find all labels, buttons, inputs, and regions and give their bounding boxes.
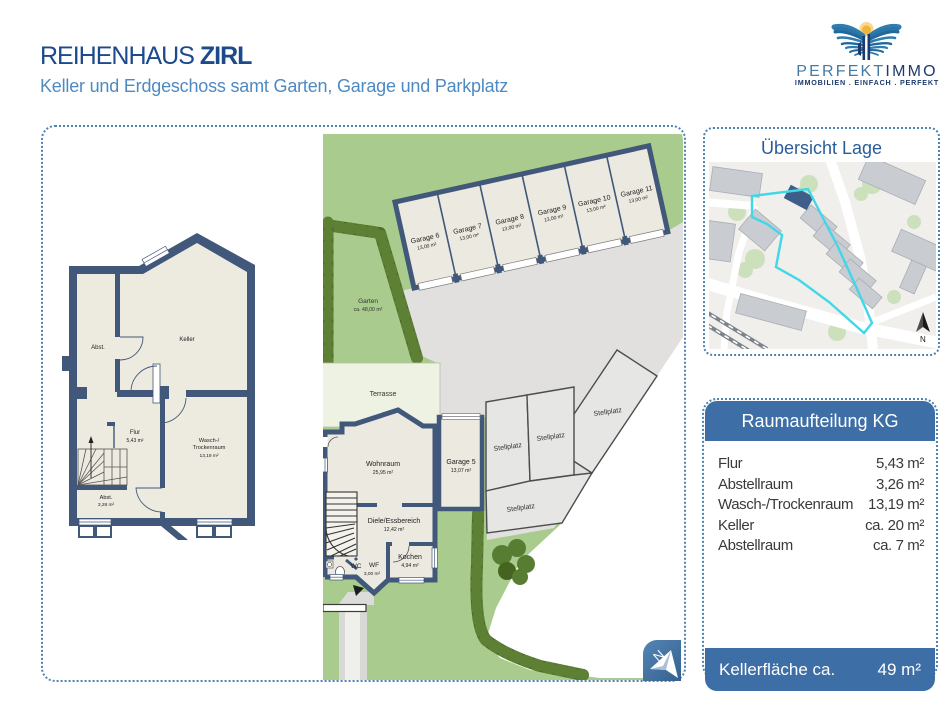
svg-text:Diele/Essbereich: Diele/Essbereich (368, 518, 421, 525)
svg-text:Wasch-/: Wasch-/ (199, 438, 220, 444)
svg-text:Keller: Keller (179, 337, 194, 343)
svg-text:Flur: Flur (130, 430, 140, 436)
svg-text:Wohnraum: Wohnraum (366, 461, 400, 468)
svg-text:13,19 m²: 13,19 m² (200, 453, 219, 459)
svg-text:Garage 5: Garage 5 (446, 459, 475, 466)
svg-text:3,00 m²: 3,00 m² (364, 571, 381, 577)
svg-text:4,94 m²: 4,94 m² (401, 563, 419, 569)
svg-text:N: N (920, 335, 926, 344)
svg-text:WC: WC (351, 563, 362, 570)
svg-text:12,42 m²: 12,42 m² (384, 527, 405, 533)
svg-text:Abst.: Abst. (100, 495, 113, 501)
svg-text:25,95 m²: 25,95 m² (373, 470, 394, 476)
svg-text:Kochen: Kochen (398, 554, 422, 561)
svg-text:ca. 48,00 m²: ca. 48,00 m² (354, 307, 383, 313)
svg-text:WF: WF (369, 562, 379, 569)
svg-text:Terrasse: Terrasse (370, 391, 397, 398)
svg-text:5,43 m²: 5,43 m² (127, 438, 144, 444)
svg-text:Abst.: Abst. (91, 345, 105, 351)
svg-text:Garten: Garten (358, 298, 378, 305)
svg-text:Trockenraum: Trockenraum (193, 445, 226, 451)
svg-text:13,07 m²: 13,07 m² (451, 468, 472, 474)
svg-text:3,28 m²: 3,28 m² (98, 502, 115, 508)
svg-text:IMMOBILIEN . EINFACH . PERFEKT: IMMOBILIEN . EINFACH . PERFEKT (795, 78, 939, 87)
